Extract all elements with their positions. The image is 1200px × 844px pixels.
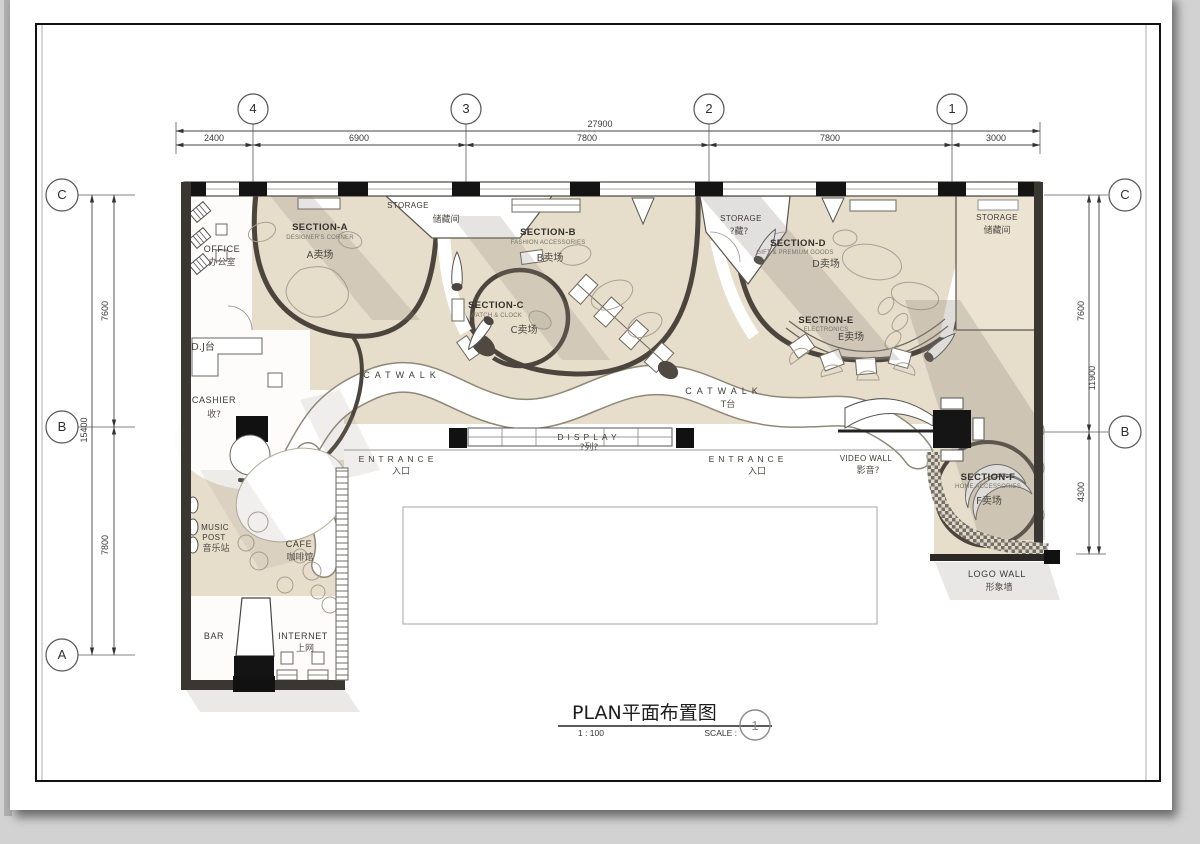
dim-right-total: 11900 xyxy=(1087,366,1097,390)
entrance-left-label-cn: 入口 xyxy=(392,466,410,477)
sheet-ratio: 1 : 100 xyxy=(578,728,604,738)
storage-right-label-cn: 储藏间 xyxy=(983,224,1010,236)
logo-wall-label-cn: 形象墙 xyxy=(985,581,1012,593)
dim-right-seg-1: 7600 xyxy=(1076,301,1086,321)
display-label-cn: ?列? xyxy=(580,441,599,453)
section-f-sublabel: HOME ACCESSORIES xyxy=(955,484,1021,490)
cafe-label: CAFE xyxy=(286,539,312,549)
section-e-label-cn: E卖场 xyxy=(838,330,864,343)
floor-plan-sheet: 4 3 2 1 27900 2400 6900 7800 7800 3000 C… xyxy=(0,0,1200,844)
grid-bubble-4: 4 xyxy=(249,101,256,116)
central-void xyxy=(403,507,877,624)
entrance-column-left xyxy=(449,428,467,448)
cashier-label-cn: 收? xyxy=(207,408,221,420)
grid-bubble-3: 3 xyxy=(462,101,469,116)
grid-bubble-B-left: B xyxy=(58,419,67,434)
section-d-sublabel: GIFT & PREMIUM GOODS xyxy=(756,250,833,256)
storage-a-label-cn: 储藏间 xyxy=(432,213,459,225)
office-label: OFFICE xyxy=(204,244,241,254)
music-post-label-cn: 音乐站 xyxy=(202,542,229,554)
storage-mid-label-cn: ?藏? xyxy=(730,225,749,237)
grid-bubble-C-left: C xyxy=(57,187,66,202)
music-post-label-2: POST xyxy=(202,533,225,542)
dim-top-total: 27900 xyxy=(587,119,612,129)
section-a-sublabel: DESIGNER'S CORNER xyxy=(286,235,354,241)
grid-bubble-B-right: B xyxy=(1121,424,1130,439)
grid-bubble-A-left: A xyxy=(58,647,67,662)
entrance-column-right xyxy=(676,428,694,448)
entrance-left-label: ENTRANCE xyxy=(359,454,438,464)
dim-left-total: 15400 xyxy=(79,417,89,442)
logo-wall xyxy=(930,554,1048,561)
section-a-label: SECTION-A xyxy=(292,222,348,233)
internet-label: INTERNET xyxy=(278,631,328,641)
catwalk-left-label: CATWALK xyxy=(363,370,441,380)
grid-bubble-2: 2 xyxy=(705,101,712,116)
detail-number: 1 xyxy=(751,718,758,733)
storage-mid-label: STORAGE xyxy=(720,214,762,223)
dim-top-seg-2: 6900 xyxy=(349,133,369,143)
catwalk-right-label-cn: T台 xyxy=(720,398,736,410)
logo-wall-label: LOGO WALL xyxy=(968,569,1026,579)
dim-top-seg-5: 3000 xyxy=(986,133,1006,143)
section-f-label-cn: F卖场 xyxy=(976,494,1002,507)
office-label-cn: 办公室 xyxy=(208,256,235,268)
section-c-label: SECTION-C xyxy=(468,300,524,311)
video-wall-label-cn: 影音? xyxy=(857,464,880,476)
entrance-right-label-cn: 入口 xyxy=(748,466,766,477)
left-wing-hatch-wall xyxy=(336,468,348,680)
storage-right-label: STORAGE xyxy=(976,213,1018,222)
internet-label-cn: 上网 xyxy=(296,643,314,654)
section-e-label: SECTION-E xyxy=(798,315,853,326)
scale-label: SCALE : xyxy=(704,728,737,738)
bar-label: BAR xyxy=(204,631,224,641)
dim-left-seg-1: 7600 xyxy=(100,301,110,321)
section-d-label: SECTION-D xyxy=(770,238,826,249)
dim-left-seg-2: 7800 xyxy=(100,535,110,555)
storage-a-label: STORAGE xyxy=(387,201,429,210)
cafe-label-cn: 咖啡馆 xyxy=(286,551,313,563)
sheet-title: PLAN平面布置图 xyxy=(572,702,717,724)
section-a-label-cn: A卖场 xyxy=(307,248,334,261)
section-b-sublabel: FASHION ACCESSORIES xyxy=(511,240,586,246)
dj-label: D.J台 xyxy=(191,340,215,353)
section-c-sublabel: WATCH & CLOCK xyxy=(470,313,522,319)
section-b-label: SECTION-B xyxy=(520,227,576,238)
dim-top-seg-1: 2400 xyxy=(204,133,224,143)
dim-right-seg-2: 4300 xyxy=(1076,482,1086,502)
music-post-label-1: MUSIC xyxy=(201,523,229,532)
display-label: DISPLAY xyxy=(557,432,620,442)
dim-top-seg-3: 7800 xyxy=(577,133,597,143)
catwalk-right-label: CATWALK xyxy=(685,386,763,396)
section-b-label-cn: B卖场 xyxy=(537,251,564,264)
section-c-label-cn: C卖场 xyxy=(511,323,538,336)
cashier-label: CASHIER xyxy=(192,395,236,405)
video-wall-label: VIDEO WALL xyxy=(840,454,893,463)
entrance-right-label: ENTRANCE xyxy=(709,454,788,464)
dim-top-seg-4: 7800 xyxy=(820,133,840,143)
grid-bubble-C-right: C xyxy=(1120,187,1129,202)
section-d-label-cn: D卖场 xyxy=(812,257,840,270)
section-f-label: SECTION-F xyxy=(961,472,1016,483)
grid-bubble-1: 1 xyxy=(948,101,955,116)
